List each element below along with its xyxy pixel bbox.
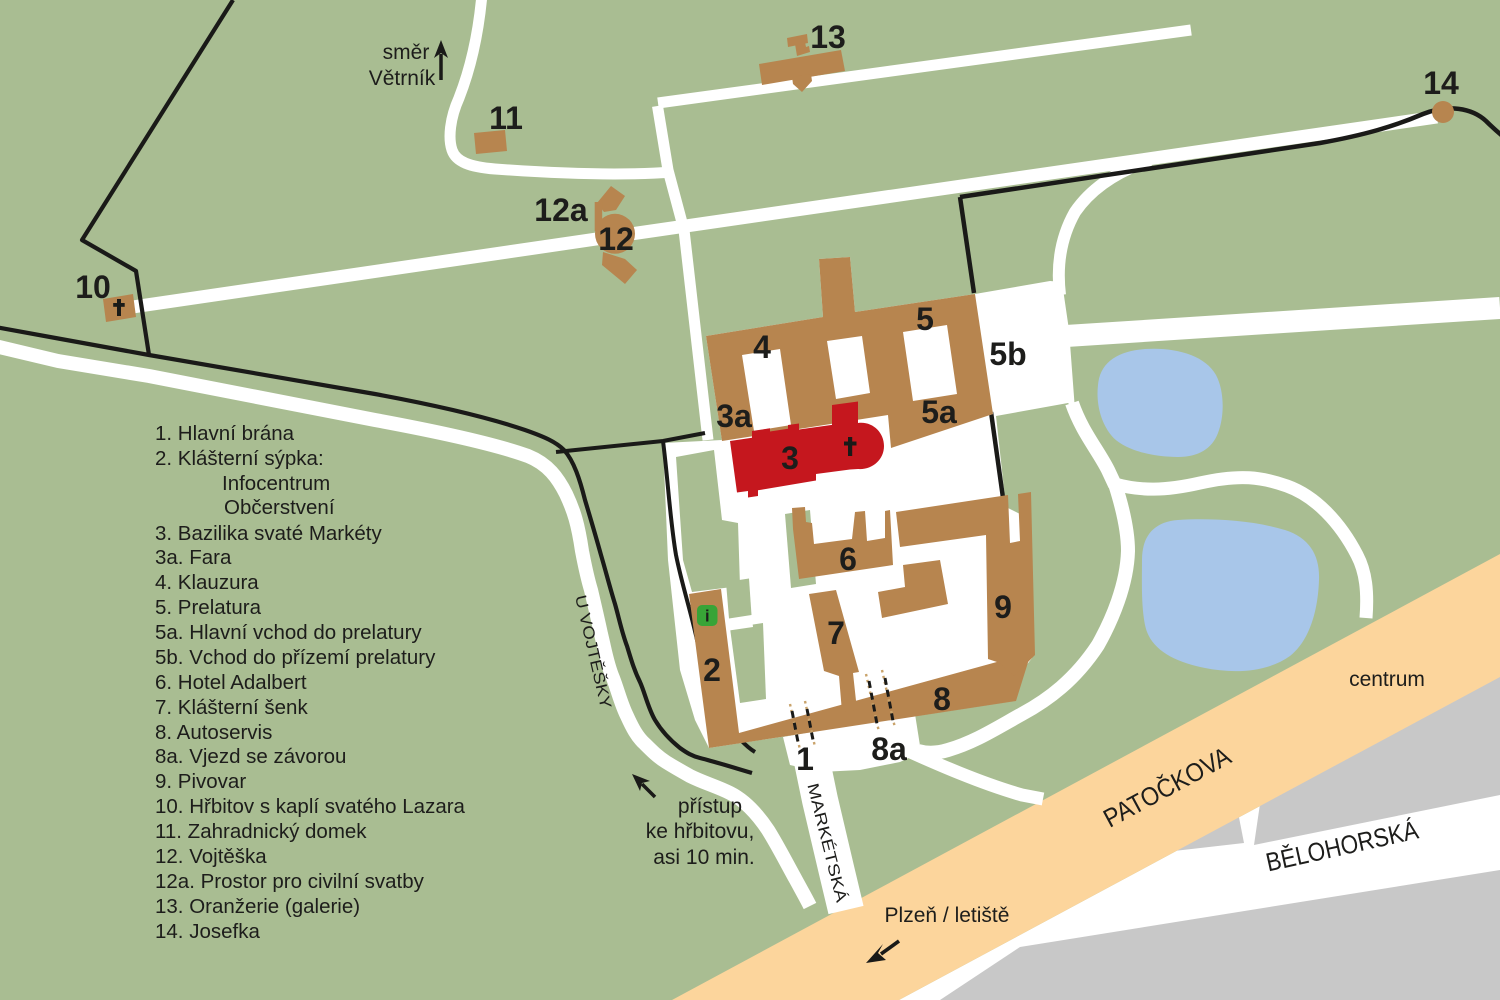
svg-text:13. Oranžerie (galerie): 13. Oranžerie (galerie) (155, 895, 360, 918)
svg-text:1: 1 (796, 741, 814, 777)
svg-text:5a. Hlavní vchod do prelatury: 5a. Hlavní vchod do prelatury (155, 621, 422, 644)
svg-text:5a: 5a (921, 394, 957, 430)
svg-text:4: 4 (753, 329, 771, 365)
svg-text:Infocentrum: Infocentrum (222, 472, 330, 495)
svg-text:3: 3 (781, 440, 799, 476)
svg-text:12a. Prostor pro civilní svatb: 12a. Prostor pro civilní svatby (155, 870, 425, 893)
svg-text:asi 10 min.: asi 10 min. (653, 846, 755, 869)
svg-text:9. Pivovar: 9. Pivovar (155, 770, 246, 793)
svg-text:8a. Vjezd se závorou: 8a. Vjezd se závorou (155, 745, 346, 768)
svg-text:14: 14 (1423, 65, 1459, 101)
svg-text:5: 5 (916, 301, 934, 337)
svg-text:centrum: centrum (1349, 668, 1425, 691)
svg-text:5b. Vchod do přízemí prelatury: 5b. Vchod do přízemí prelatury (155, 646, 436, 669)
svg-text:směr: směr (383, 41, 430, 64)
svg-text:i: i (705, 608, 710, 626)
svg-text:5b: 5b (989, 336, 1026, 372)
svg-text:přístup: přístup (678, 795, 742, 818)
svg-text:3. Bazilika svaté Markéty: 3. Bazilika svaté Markéty (155, 522, 382, 545)
svg-text:14. Josefka: 14. Josefka (155, 920, 260, 943)
svg-text:Větrník: Větrník (369, 67, 436, 90)
svg-text:12: 12 (598, 221, 634, 257)
svg-text:7. Klášterní šenk: 7. Klášterní šenk (155, 696, 308, 719)
svg-text:Plzeň / letiště: Plzeň / letiště (885, 904, 1010, 927)
svg-text:13: 13 (810, 19, 846, 55)
svg-text:5. Prelatura: 5. Prelatura (155, 596, 262, 619)
svg-text:10. Hřbitov s kaplí svatého La: 10. Hřbitov s kaplí svatého Lazara (155, 795, 466, 818)
svg-text:6: 6 (839, 541, 857, 577)
svg-text:10: 10 (75, 269, 111, 305)
svg-text:Občerstvení: Občerstvení (224, 496, 335, 519)
svg-text:2. Klášterní sýpka:: 2. Klášterní sýpka: (155, 447, 324, 470)
svg-text:8a: 8a (871, 731, 907, 767)
svg-text:2: 2 (703, 652, 721, 688)
svg-text:8: 8 (933, 681, 951, 717)
svg-text:12a: 12a (534, 192, 588, 228)
svg-text:7: 7 (827, 615, 845, 651)
svg-text:9: 9 (994, 589, 1012, 625)
svg-text:11. Zahradnický domek: 11. Zahradnický domek (155, 820, 367, 843)
svg-text:ke hřbitovu,: ke hřbitovu, (646, 820, 755, 843)
svg-text:12. Vojtěška: 12. Vojtěška (155, 845, 267, 868)
svg-text:6. Hotel Adalbert: 6. Hotel Adalbert (155, 671, 307, 694)
svg-text:3a. Fara: 3a. Fara (155, 546, 232, 569)
svg-text:4. Klauzura: 4. Klauzura (155, 571, 259, 594)
svg-text:8. Autoservis: 8. Autoservis (155, 721, 272, 744)
svg-text:11: 11 (489, 100, 523, 136)
svg-text:1. Hlavní brána: 1. Hlavní brána (155, 422, 295, 445)
svg-text:3a: 3a (716, 398, 752, 434)
